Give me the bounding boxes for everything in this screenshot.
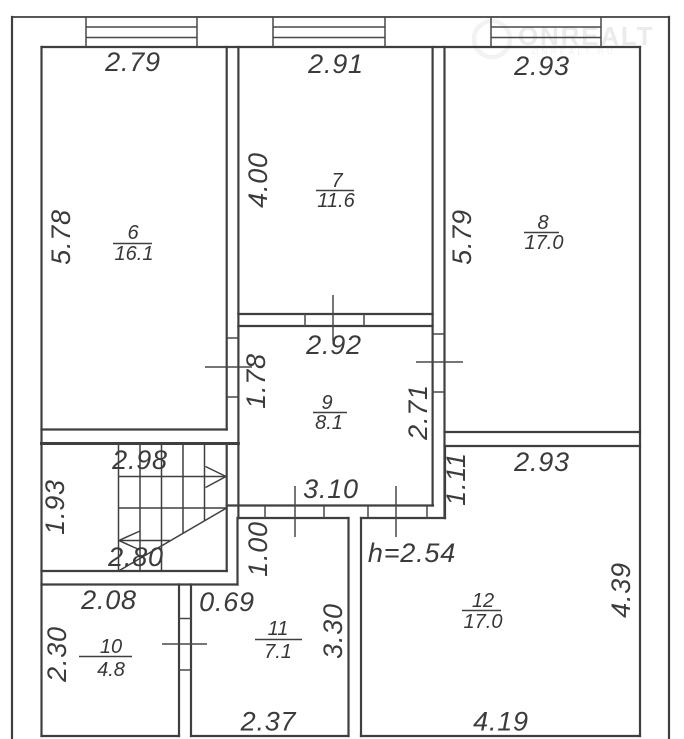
svg-text:2.92: 2.92	[305, 330, 362, 360]
svg-text:2.71: 2.71	[403, 384, 433, 441]
svg-text:1.93: 1.93	[40, 479, 70, 535]
svg-text:h=2.54: h=2.54	[368, 538, 456, 568]
svg-text:2.30: 2.30	[42, 626, 72, 683]
svg-text:17.0: 17.0	[464, 611, 503, 633]
svg-text:8: 8	[537, 212, 548, 234]
svg-text:5.78: 5.78	[46, 209, 76, 265]
svg-text:17.0: 17.0	[525, 232, 564, 254]
svg-text:2.93: 2.93	[513, 51, 570, 81]
svg-text:10: 10	[100, 636, 122, 658]
svg-text:9: 9	[321, 392, 332, 414]
svg-text:2.80: 2.80	[107, 542, 164, 572]
svg-text:4.8: 4.8	[97, 659, 125, 681]
svg-text:1.78: 1.78	[241, 353, 271, 409]
svg-text:4.19: 4.19	[473, 707, 529, 737]
svg-text:3.30: 3.30	[318, 603, 348, 659]
svg-text:2.08: 2.08	[80, 585, 137, 615]
svg-text:12: 12	[472, 590, 494, 612]
svg-text:8.1: 8.1	[315, 412, 343, 434]
svg-text:4.00: 4.00	[243, 152, 273, 208]
svg-text:11: 11	[268, 618, 289, 640]
svg-text:3.10: 3.10	[303, 474, 359, 504]
svg-text:11.6: 11.6	[317, 190, 355, 212]
svg-text:1.00: 1.00	[243, 521, 273, 577]
svg-text:2.98: 2.98	[111, 445, 168, 475]
svg-text:6: 6	[127, 222, 139, 244]
svg-text:1.11: 1.11	[441, 452, 471, 506]
svg-text:5.79: 5.79	[447, 209, 477, 265]
svg-text:7: 7	[331, 170, 343, 192]
svg-text:4.39: 4.39	[606, 562, 636, 618]
svg-text:2.91: 2.91	[307, 49, 364, 79]
svg-text:2.37: 2.37	[240, 707, 297, 737]
svg-text:2.93: 2.93	[513, 447, 570, 477]
svg-text:2.79: 2.79	[104, 47, 161, 77]
svg-text:7.1: 7.1	[264, 641, 292, 663]
svg-text:16.1: 16.1	[115, 243, 154, 265]
svg-text:0.69: 0.69	[199, 587, 255, 617]
